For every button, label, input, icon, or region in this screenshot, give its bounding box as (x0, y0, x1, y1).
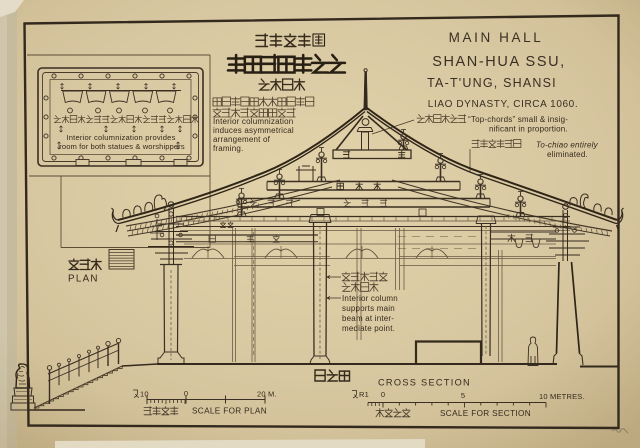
svg-text:room for both statues & worshi: room for both statues & worshippers (59, 142, 185, 151)
svg-text:10: 10 (140, 390, 149, 399)
svg-text:LIAO DYNASTY, CIRCA 1060.: LIAO DYNASTY, CIRCA 1060. (428, 99, 578, 110)
svg-text:0: 0 (184, 389, 188, 398)
svg-text:“Top-chords” small & insig-: “Top-chords” small & insig- (468, 115, 568, 124)
svg-text:PLAN: PLAN (68, 274, 99, 285)
svg-text:mediate point.: mediate point. (342, 324, 395, 333)
svg-text:SCALE FOR PLAN: SCALE FOR PLAN (192, 407, 267, 416)
svg-text:arrangement of: arrangement of (213, 135, 271, 144)
svg-text:beam at inter-: beam at inter- (342, 314, 394, 323)
svg-text:SCALE FOR SECTION: SCALE FOR SECTION (440, 409, 531, 418)
svg-text:Interior column: Interior column (342, 294, 398, 303)
svg-text:0: 0 (381, 390, 385, 399)
svg-text:eliminated.: eliminated. (547, 150, 588, 159)
svg-text:induces asymmetrical: induces asymmetrical (213, 126, 294, 135)
svg-text:supports main: supports main (342, 304, 395, 313)
svg-text:CROSS SECTION: CROSS SECTION (378, 378, 471, 388)
svg-text:nificant in proportion.: nificant in proportion. (489, 125, 568, 134)
svg-text:10 METRES.: 10 METRES. (539, 392, 585, 401)
svg-text:TA-T'UNG, SHANSI: TA-T'UNG, SHANSI (427, 76, 557, 90)
svg-text:SHAN-HUA SSU,: SHAN-HUA SSU, (432, 54, 566, 70)
svg-text:Interior columnization provi: Interior columnization provides (66, 133, 175, 142)
svg-text:framing.: framing. (213, 144, 244, 153)
svg-text:MAIN HALL: MAIN HALL (449, 30, 544, 45)
svg-text:Interior columnization: Interior columnization (213, 117, 293, 126)
svg-text:To-chiao entirely: To-chiao entirely (536, 141, 599, 150)
svg-text:R1: R1 (359, 390, 369, 399)
svg-text:5: 5 (461, 391, 465, 400)
svg-text:20 M.: 20 M. (257, 390, 277, 399)
